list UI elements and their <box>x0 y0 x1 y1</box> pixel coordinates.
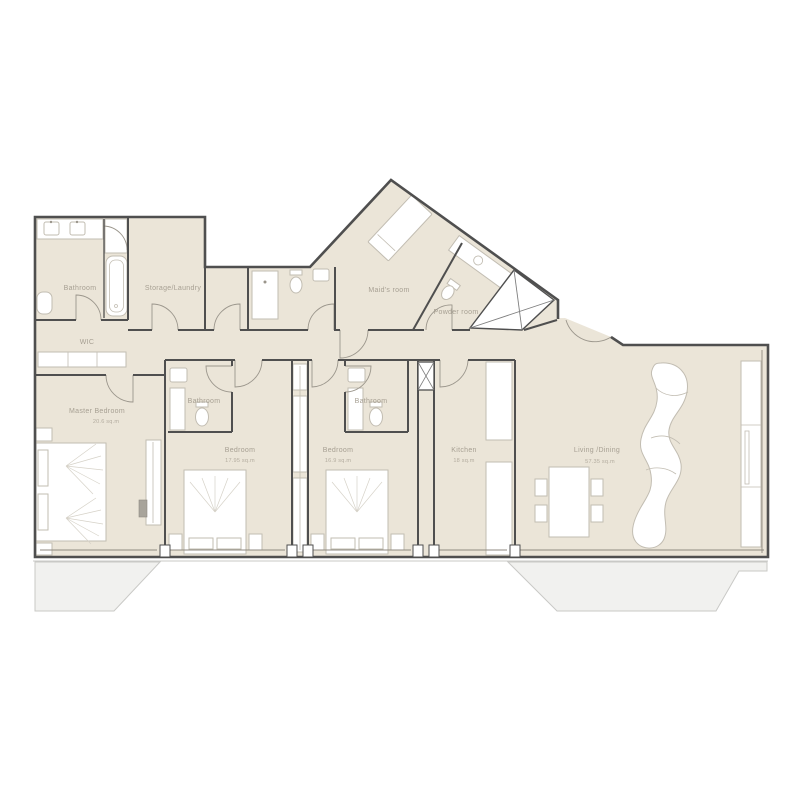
chair <box>591 505 603 522</box>
floor-plan-page: Bathroom Storage/Laundry Maid's room Pow… <box>0 0 800 800</box>
nightstand <box>169 534 182 550</box>
nightstand <box>36 428 52 441</box>
room-label-bedroom-2: Bedroom <box>323 447 354 454</box>
room-label-bathroom-1: Bathroom <box>188 398 221 405</box>
room-area-bedroom-2: 16.9 sq.m <box>325 458 352 464</box>
room-label-bedroom-1: Bedroom <box>225 447 256 454</box>
floor-plan: Bathroom Storage/Laundry Maid's room Pow… <box>0 0 800 800</box>
shaft2-icon <box>418 362 434 390</box>
lamp-icon <box>139 500 147 517</box>
terrace-left <box>35 562 160 611</box>
shower-icon <box>170 388 185 430</box>
wic-closet <box>38 352 126 367</box>
room-label-powder-room: Powder room <box>434 309 479 316</box>
sink-icon <box>170 368 187 382</box>
sink-icon <box>44 222 59 235</box>
wardrobe <box>146 440 161 525</box>
window-ledge <box>741 361 761 547</box>
nightstand <box>391 534 404 550</box>
shower-icon <box>348 388 363 430</box>
nightstand <box>249 534 262 550</box>
chair <box>591 479 603 496</box>
room-area-living-dining: 57.35 sq.m <box>585 459 615 465</box>
room-label-bathroom-2: Bathroom <box>355 398 388 405</box>
terrace-right <box>508 562 767 611</box>
shower-icon <box>252 271 278 319</box>
room-label-kitchen: Kitchen <box>451 447 476 454</box>
room-label-wic: WIC <box>80 339 95 346</box>
sink-icon <box>70 222 85 235</box>
room-label-storage-laundry: Storage/Laundry <box>145 285 201 292</box>
room-label-bathroom-main: Bathroom <box>64 285 97 292</box>
room-area-kitchen: 18 sq.m <box>453 458 474 464</box>
room-area-bedroom-1: 17.95 sq.m <box>225 458 255 464</box>
sink-icon <box>313 269 329 281</box>
chair <box>535 479 547 496</box>
shower-icon <box>105 219 127 253</box>
room-label-maids-room: Maid's room <box>368 287 409 294</box>
terraces <box>33 561 768 611</box>
toilet-icon <box>290 270 302 275</box>
nightstand <box>36 543 52 555</box>
toilet-icon <box>37 292 52 314</box>
dining-table <box>549 467 589 537</box>
room-area-master-bedroom: 20.6 sq.m <box>93 419 120 425</box>
room-label-master-bedroom: Master Bedroom <box>69 408 125 415</box>
sink-icon <box>348 368 365 382</box>
room-label-living-dining: Living /Dining <box>574 447 620 454</box>
chair <box>535 505 547 522</box>
